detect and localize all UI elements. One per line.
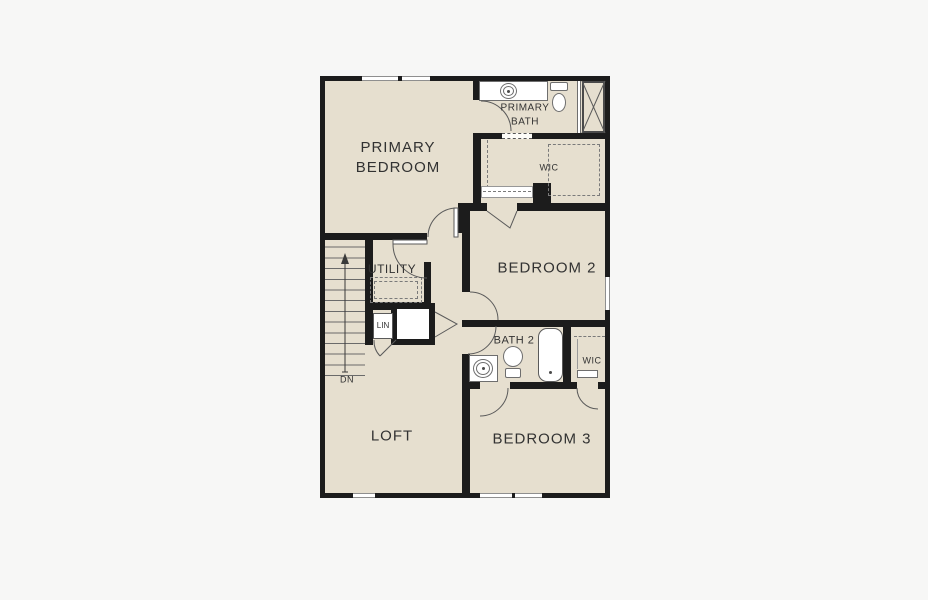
floor-plan: PRIMARY BEDROOM PRIMARY BATH WIC BEDROOM… (320, 76, 610, 498)
door-leaf-primary-bedroom (454, 208, 458, 237)
shower-x-lines (582, 81, 605, 133)
room-label-bedroom3: BEDROOM 3 (492, 432, 591, 447)
room-label-bath2: BATH 2 (494, 336, 535, 347)
room-label-linen: LIN (377, 322, 389, 330)
room-label-primary-bedroom-line1: PRIMARY (356, 138, 441, 158)
door-leaf-utility (393, 240, 427, 244)
room-label-loft: LOFT (371, 429, 413, 444)
room-label-wic-lower: WIC (583, 357, 602, 366)
door-swing-bath2 (468, 326, 496, 354)
floor-plan-canvas: PRIMARY BEDROOM PRIMARY BATH WIC BEDROOM… (0, 0, 928, 600)
room-label-primary-bedroom: PRIMARY BEDROOM (356, 138, 441, 179)
door-swing-primary-bedroom (428, 208, 457, 237)
room-label-primary-bedroom-line2: BEDROOM (356, 158, 441, 178)
room-label-primary-bath-line1: PRIMARY (501, 102, 550, 116)
stairs-direction-label: DN (340, 376, 354, 385)
door-swing-linen (374, 340, 380, 356)
door-triangle-hall-closet (435, 312, 457, 337)
room-label-bedroom2: BEDROOM 2 (497, 261, 596, 276)
room-label-primary-bath-line2: BATH (501, 115, 550, 129)
room-label-utility: UTILITY (368, 263, 416, 275)
room-label-wic-upper: WIC (540, 164, 559, 173)
door-triangle-bedroom2-entry (487, 211, 517, 228)
room-label-primary-bath: PRIMARY BATH (501, 102, 550, 129)
door-swing-bedroom2 (470, 292, 498, 320)
stairs-direction-line (342, 262, 348, 372)
stairs-arrow-head (341, 253, 349, 264)
door-swing-bedroom3 (480, 388, 508, 416)
door-leaf-linen (380, 340, 396, 356)
door-swing-wic-lower (577, 388, 598, 409)
